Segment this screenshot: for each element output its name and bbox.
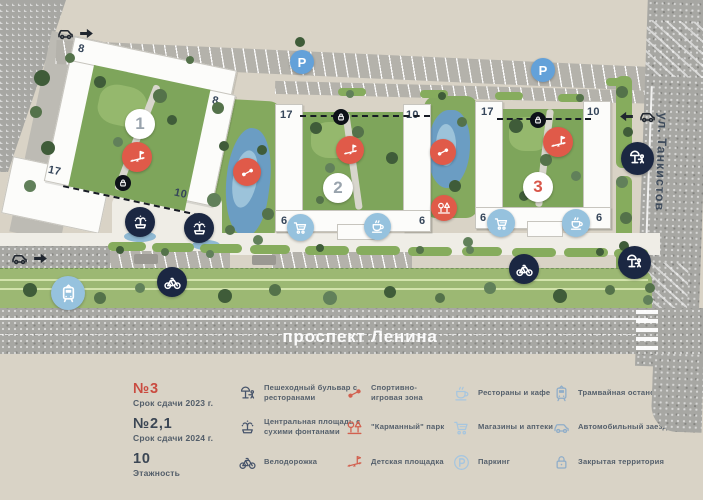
car-icon [56, 24, 75, 43]
parking-1-marker: P [290, 50, 314, 74]
legend-item-fountain-plaza: Центральная площадь с сухими фонтанами [238, 413, 362, 441]
marker-layer: 123PP [0, 0, 703, 375]
lock-icon [533, 115, 543, 125]
legend-item-pocket-park: "Карманный" парк [345, 413, 451, 441]
arrow-left-icon [618, 108, 635, 125]
playground-1-marker [122, 142, 152, 172]
legend-item-bike-path: Велодорожка [238, 448, 362, 476]
legend-item-shops: Магазины и аптеки [452, 413, 560, 441]
sport-zone-2-marker [430, 139, 456, 165]
legend-building-21-title: №2,1 [133, 416, 173, 432]
legend-building-3-title: №3 [133, 381, 159, 397]
legend-item-parking: Паркинг [452, 448, 560, 476]
cart-icon [493, 215, 510, 232]
map-legend: №3 Срок сдачи 2023 г. №2,1 Срок сдачи 20… [0, 372, 703, 500]
building-1-badge-marker: 1 [125, 109, 155, 139]
fountain-plaza-2-marker [184, 213, 214, 243]
playground-icon [549, 133, 568, 152]
legend-label: "Карманный" парк [371, 422, 451, 432]
gate-lock-1-marker [115, 175, 131, 191]
lock-icon [336, 112, 346, 122]
arrow-right-icon [78, 25, 95, 42]
cafe-icon [369, 218, 386, 235]
cafe-icon [568, 215, 585, 232]
legend-item-playground: Детская площадка [345, 448, 451, 476]
car-icon [638, 107, 657, 126]
lock-icon [552, 453, 571, 472]
car-entry-east [618, 107, 657, 126]
car-icon [10, 249, 29, 268]
shops-2-marker [287, 214, 314, 241]
parking-2-marker: P [531, 58, 555, 82]
cart-icon [452, 418, 471, 437]
bike-path-2-marker [509, 254, 539, 284]
car-entry-northwest [56, 24, 95, 43]
cafe-icon [452, 384, 471, 403]
lock-icon [118, 178, 128, 188]
boulevard-1-marker [621, 142, 654, 175]
car-icon [552, 418, 571, 437]
legend-building-21-subtitle: Срок сдачи 2024 г. [133, 433, 213, 443]
playground-icon [128, 148, 147, 167]
legend-label: Паркинг [478, 457, 560, 467]
legend-floors-subtitle: Этажность [133, 468, 180, 478]
site-plan-map: ул. Танкистов 8 8 17 10 [0, 0, 703, 375]
tram-icon [58, 283, 79, 304]
playground-icon [342, 142, 359, 159]
gate-lock-2-marker [333, 109, 349, 125]
dumbbell-icon [239, 164, 256, 181]
tram-stop-marker [51, 276, 85, 310]
legend-label: Рестораны и кафе [478, 388, 560, 398]
legend-building-3-subtitle: Срок сдачи 2023 г. [133, 398, 213, 408]
bike-path-1-marker [157, 267, 187, 297]
legend-label: Детская площадка [371, 457, 451, 467]
car-entry-west [10, 249, 49, 268]
playground-3-marker [543, 127, 573, 157]
legend-item-restaurants: Рестораны и кафе [452, 379, 560, 407]
cart-icon [292, 219, 309, 236]
arrow-right-icon [32, 250, 49, 267]
bicycle-icon [163, 273, 182, 292]
fountain-plaza-1-marker [125, 207, 155, 237]
dumbbell-icon [435, 144, 451, 160]
boulevard-2-marker [618, 246, 651, 279]
boulevard-icon [624, 252, 644, 272]
fountain-icon [190, 219, 209, 238]
parking-icon [452, 453, 471, 472]
boulevard-icon [238, 384, 257, 403]
bicycle-icon [238, 453, 257, 472]
playground-2-marker [336, 136, 364, 164]
pocket-park-icon [436, 200, 452, 216]
fountain-icon [238, 418, 257, 437]
masterplan-page: ул. Танкистов 8 8 17 10 [0, 0, 703, 500]
legend-label: Спортивно- игровая зона [371, 383, 451, 403]
legend-item-sport-zone: Спортивно- игровая зона [345, 379, 451, 407]
sport-zone-1-marker [233, 158, 261, 186]
cafe-3-marker [562, 209, 590, 237]
boulevard-icon [627, 148, 647, 168]
pocket-park-marker [431, 195, 457, 221]
legend-item-boulevard: Пешеходный бульвар с ресторанами [238, 379, 362, 407]
cafe-2-marker [364, 213, 391, 240]
fountain-icon [131, 213, 150, 232]
gate-lock-3-marker [530, 112, 546, 128]
legend-floors-title: 10 [133, 451, 151, 467]
building-2-badge-marker: 2 [323, 173, 353, 203]
playground-icon [345, 453, 364, 472]
legend-label: Магазины и аптеки [478, 422, 560, 432]
tram-icon [552, 384, 571, 403]
legend-item-closed-territory: Закрытая территория [552, 448, 676, 476]
building-3-badge-marker: 3 [523, 172, 553, 202]
dumbbell-icon [345, 384, 364, 403]
shops-3-marker [487, 209, 515, 237]
pocket-park-icon [345, 418, 364, 437]
legend-label: Закрытая территория [578, 457, 676, 467]
bicycle-icon [515, 260, 534, 279]
